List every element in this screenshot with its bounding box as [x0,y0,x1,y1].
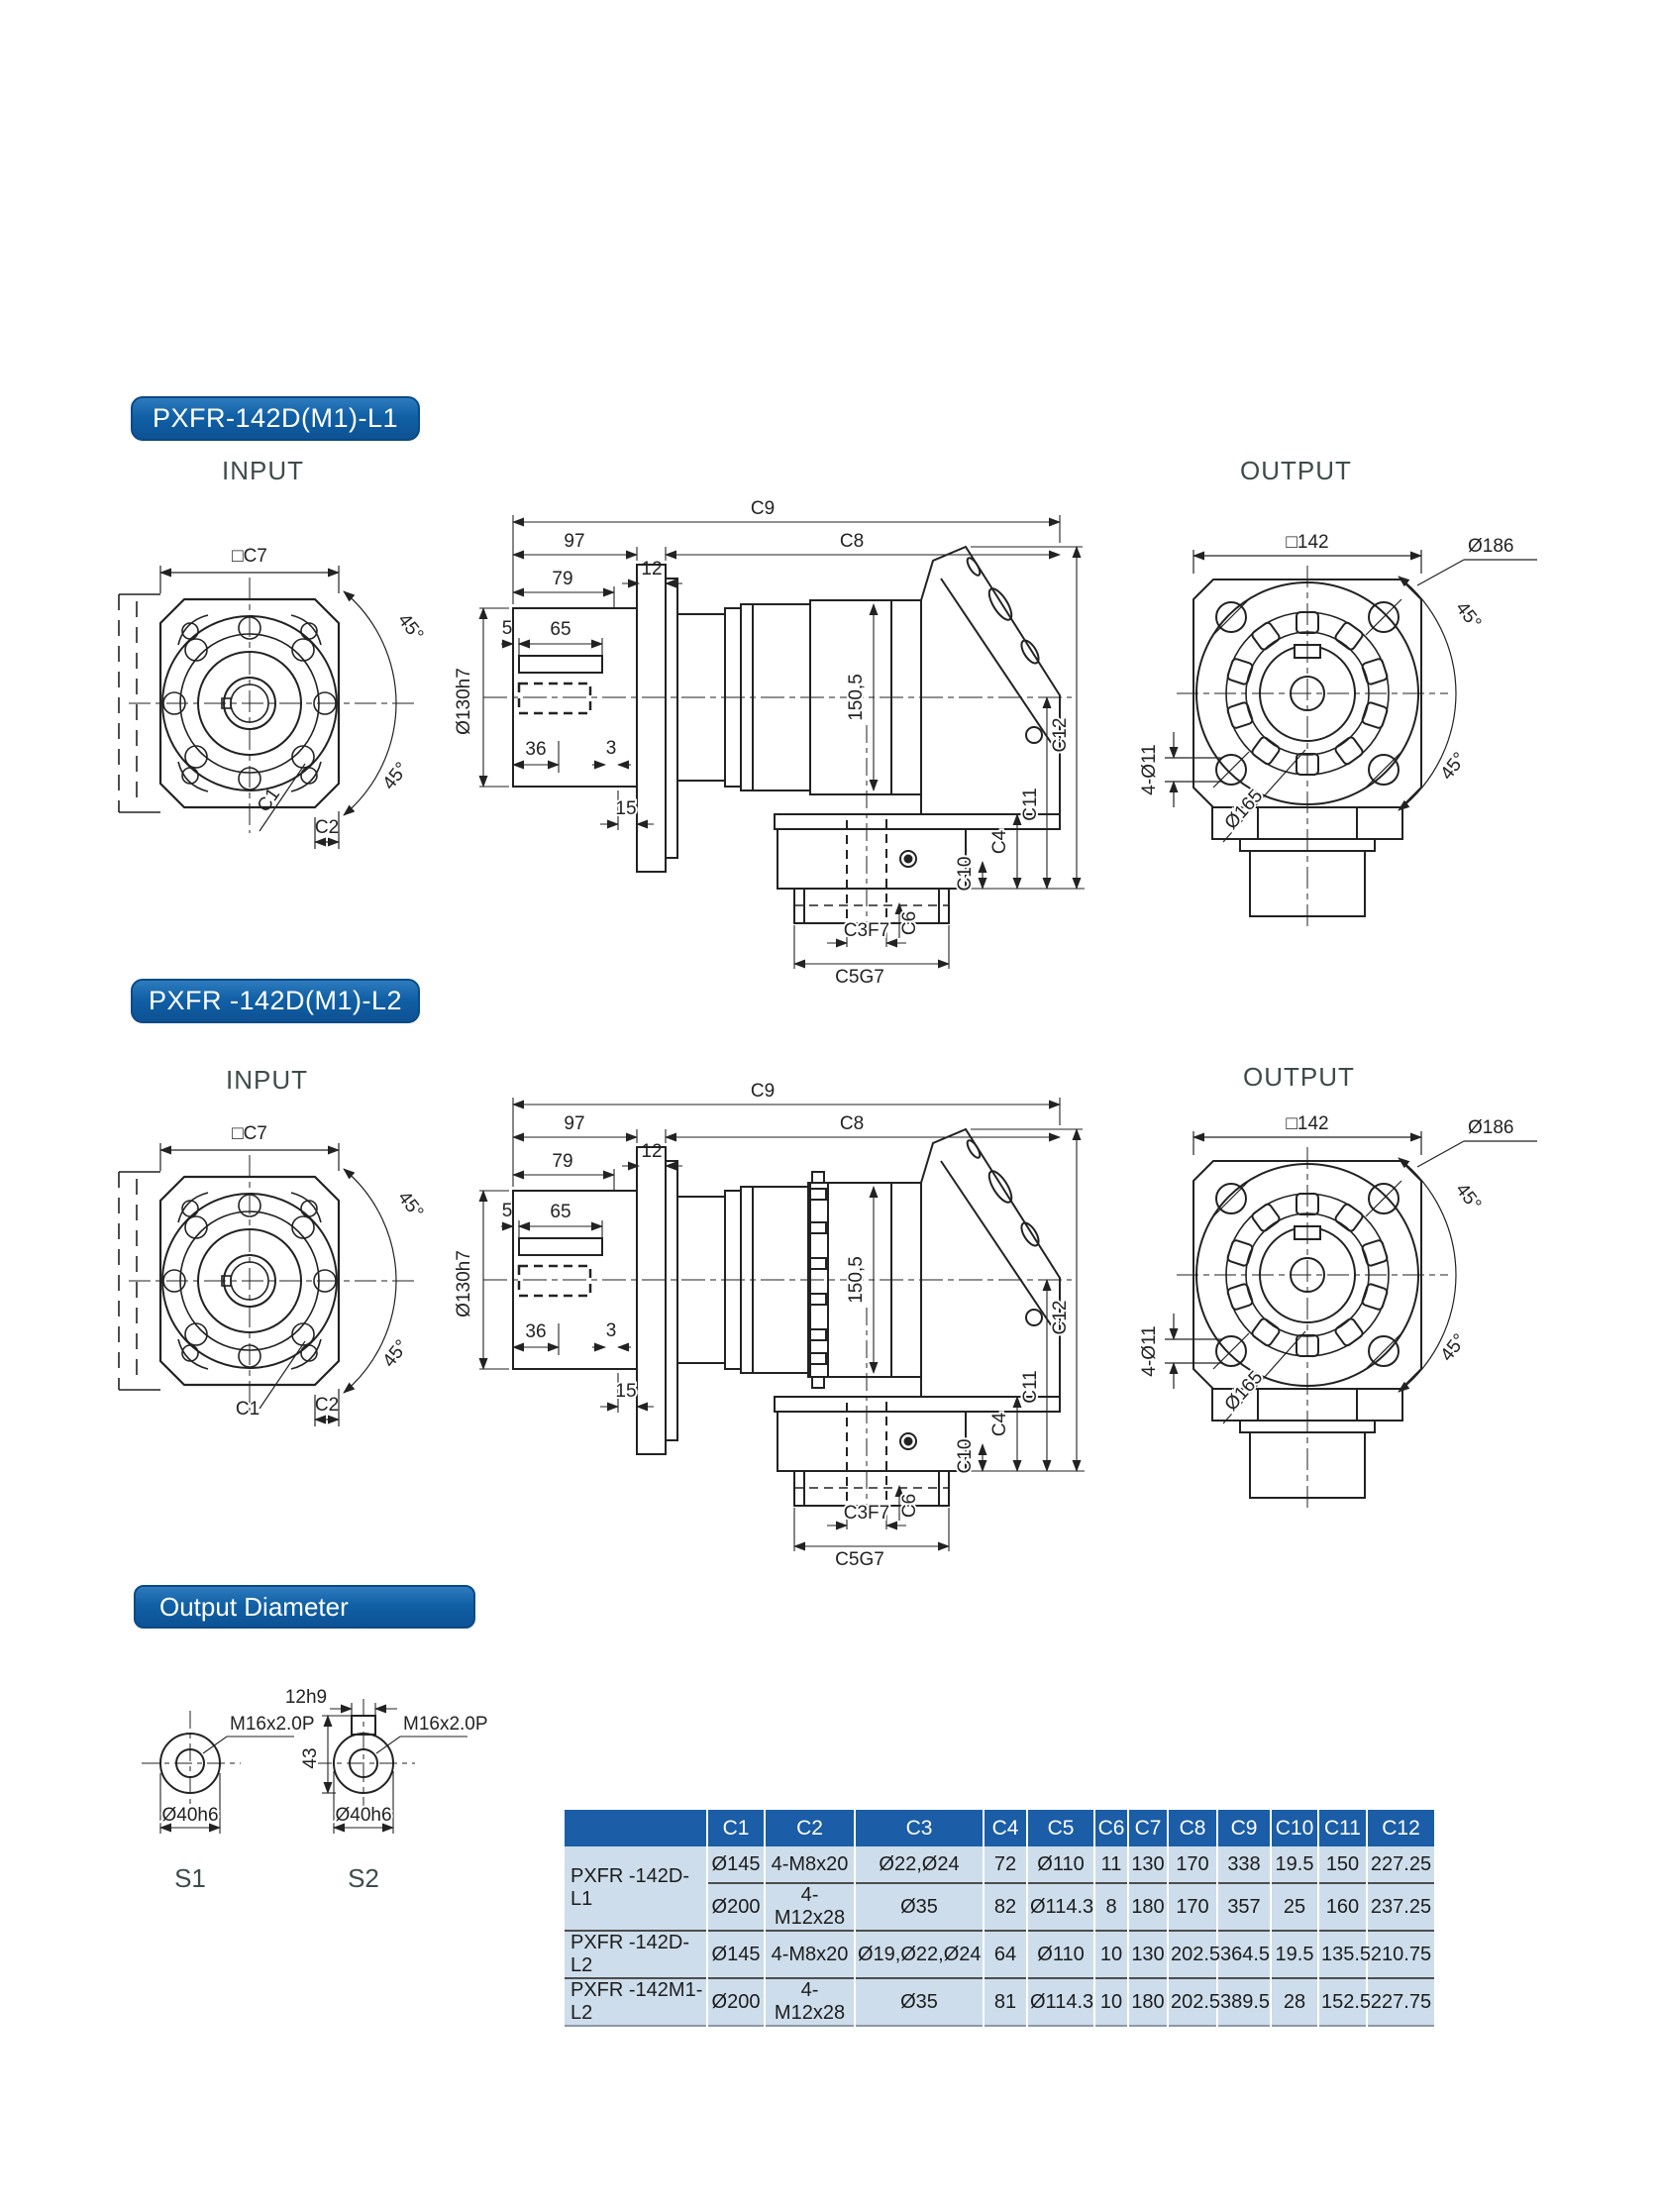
section-title-l2: PXFR -142D(M1)-L2 [131,979,420,1023]
spec-header-c3: C3 [855,1810,984,1846]
dim-c11: C11 [1020,1370,1041,1403]
dim-97: 97 [564,531,584,552]
spec-cell: Ø114.3 [1027,1883,1094,1931]
spec-cell: 82 [984,1883,1027,1931]
spec-cell: 227.25 [1367,1846,1434,1883]
dim-c10: C10 [955,857,976,892]
spec-cell: 28 [1271,1978,1318,2026]
spec-cell: 72 [984,1846,1027,1883]
spec-cell: Ø200 [707,1883,765,1931]
spec-header-row: C1 C2 C3 C4 C5 C6 C7 C8 C9 C10 C11 C12 [565,1810,1434,1846]
spec-cell: Ø35 [855,1978,984,2026]
input-label-l2: INPUT [226,1065,308,1096]
spec-cell: Ø145 [707,1846,765,1883]
spec-cell: 180 [1128,1978,1168,2026]
spec-header-c10: C10 [1271,1810,1318,1846]
shaft-label-s2: S2 [348,1863,379,1893]
spec-header-model [565,1810,707,1846]
spec-model-l1: PXFR -142D-L1 [565,1846,707,1931]
dim-65: 65 [550,619,570,640]
spec-cell: 338 [1217,1846,1271,1883]
spec-table: C1 C2 C3 C4 C5 C6 C7 C8 C9 C10 C11 C12 P… [565,1810,1434,2027]
spec-row-l2: PXFR -142D-L2 Ø145 4-M8x20 Ø19,Ø22,Ø24 6… [565,1931,1434,1978]
spec-model-l2: PXFR -142D-L2 [565,1931,707,1978]
spec-row-m1-l2: PXFR -142M1-L2 Ø200 4-M12x28 Ø35 81 Ø114… [565,1978,1434,2026]
dim-square: □142 [1286,1113,1328,1134]
spec-header-c11: C11 [1318,1810,1367,1846]
dim-angle-top: 45° [393,1188,427,1223]
spec-cell: Ø200 [707,1978,765,2026]
dim-c3: C3F7 [844,920,889,941]
side-view-hidden-lines [483,1266,1072,1518]
spec-cell: 11 [1094,1846,1128,1883]
dim-angle-bottom: 45° [379,759,413,794]
spec-cell: 25 [1271,1883,1318,1931]
dim-65: 65 [550,1202,570,1222]
dim-36: 36 [525,1321,546,1342]
spec-cell: 237.25 [1367,1883,1434,1931]
dim-3: 3 [606,738,617,759]
dim-3: 3 [606,1320,617,1341]
output-flange-dims [1165,550,1537,842]
dim-c11: C11 [1020,788,1041,820]
spec-cell: 64 [984,1931,1027,1978]
spec-cell: 227.75 [1367,1978,1434,2026]
dim-angle-top: 45° [1451,598,1485,634]
spec-header-c8: C8 [1168,1810,1217,1846]
spec-header-c6: C6 [1094,1810,1128,1846]
spec-header-c9: C9 [1217,1810,1271,1846]
output-diameter-title: Output Diameter [159,1592,349,1623]
dim-12: 12 [641,1141,662,1162]
spec-model-m1-l2: PXFR -142M1-L2 [565,1978,707,2026]
spec-cell: 4-M12x28 [765,1883,855,1931]
spec-cell: 10 [1094,1978,1128,2026]
dim-5: 5 [502,618,513,639]
datasheet-page: PXFR-142D(M1)-L1 INPUT OUTPUT [0,0,1659,2212]
dim-shaft-dia-s1: Ø40h6 [161,1805,218,1826]
spec-cell: 4-M8x20 [765,1931,855,1978]
spec-header-c4: C4 [984,1810,1027,1846]
spec-cell: 357 [1217,1883,1271,1931]
output-flange-dims [1165,1131,1537,1423]
dim-bolt-holes: 4-Ø11 [1139,1325,1160,1376]
spec-cell: 8 [1094,1883,1128,1931]
dim-angle-top: 45° [393,610,427,646]
spec-cell: 160 [1318,1883,1367,1931]
dim-c2: C2 [315,817,339,838]
dim-key-width-s2: 12h9 [285,1687,327,1708]
section-title-l1-text: PXFR-142D(M1)-L1 [153,403,398,434]
side-view-drawing-l1: C9 97 C8 79 12 5 65 Ø130h7 150,5 36 3 15… [426,487,1119,1052]
spec-cell: Ø110 [1027,1931,1094,1978]
spec-header-c1: C1 [707,1810,765,1846]
side-view-drawing-l2: C9 97 C8 79 12 5 65 Ø130h7 150,5 36 3 15… [426,1070,1119,1634]
dim-79: 79 [552,569,572,589]
spec-cell: 364.5 [1217,1931,1271,1978]
side-view-hidden-lines [483,684,1072,935]
dim-c9: C9 [751,498,775,519]
dim-c2: C2 [315,1395,339,1416]
dim-c8: C8 [840,1113,864,1134]
dim-150: 150,5 [846,1256,867,1304]
dim-c7: □C7 [232,546,267,567]
output-label-l2: OUTPUT [1243,1062,1355,1093]
output-view-drawing-l2: □142 Ø186 45° 45° 4-Ø11 Ø165 [1129,1102,1555,1527]
spec-cell: Ø110 [1027,1846,1094,1883]
dim-c4: C4 [989,829,1010,854]
dim-c5: C5G7 [835,1549,884,1570]
shaft-label-s1: S1 [174,1863,206,1893]
spec-header-c5: C5 [1027,1810,1094,1846]
dim-36: 36 [525,739,546,760]
dim-c6: C6 [899,911,920,935]
side-view-linework [513,547,1060,923]
input-label-l1: INPUT [222,456,304,486]
dim-c12: C12 [1050,1301,1071,1335]
input-flange-linework [119,594,339,812]
spec-header-c2: C2 [765,1810,855,1846]
spec-cell: 130 [1128,1846,1168,1883]
dim-shaft-dia-s2: Ø40h6 [335,1805,391,1826]
spec-cell: 4-M12x28 [765,1978,855,2026]
spec-cell: Ø19,Ø22,Ø24 [855,1931,984,1978]
dim-c6: C6 [899,1494,920,1518]
dim-5: 5 [502,1201,513,1221]
spec-cell: 210.75 [1367,1931,1434,1978]
output-diameter-drawing: M16x2.0P Ø40h6 S1 M16x2.0P 12h9 43 Ø40h6… [104,1677,574,1910]
spec-cell: 10 [1094,1931,1128,1978]
spec-cell: 202.5 [1168,1978,1217,2026]
dim-c1: C1 [236,1399,259,1420]
spec-cell: 19.5 [1271,1846,1318,1883]
dim-15: 15 [615,798,636,819]
dim-key-depth-s2: 43 [300,1747,321,1768]
spec-cell: Ø35 [855,1883,984,1931]
section-title-l1: PXFR-142D(M1)-L1 [131,396,420,441]
spec-cell: 180 [1128,1883,1168,1931]
dim-c8: C8 [840,531,864,552]
input-flange-linework [119,1172,339,1390]
dim-12: 12 [641,559,662,579]
output-diameter-title-bar: Output Diameter [134,1585,475,1629]
dim-c4: C4 [989,1412,1010,1436]
spec-cell: 130 [1128,1931,1168,1978]
spec-cell: 135.5 [1318,1931,1367,1978]
spec-cell: 170 [1168,1846,1217,1883]
dim-150: 150,5 [846,674,867,721]
spec-cell: 202.5 [1168,1931,1217,1978]
dim-c3: C3F7 [844,1503,889,1524]
dim-angle-bottom: 45° [1437,1330,1471,1366]
spec-cell: 150 [1318,1846,1367,1883]
dim-15: 15 [615,1381,636,1402]
spec-cell: 152.5 [1318,1978,1367,2026]
dim-c7: □C7 [232,1123,267,1144]
dim-c9: C9 [751,1081,775,1102]
spec-cell: Ø114.3 [1027,1978,1094,2026]
side-view-linework [513,1129,1060,1506]
dim-c12: C12 [1050,718,1071,753]
input-view-drawing-l2: □C7 45° 45° C1 C2 [99,1117,456,1444]
dim-bolt-holes: 4-Ø11 [1139,744,1160,794]
spec-cell: Ø22,Ø24 [855,1846,984,1883]
input-view-drawing-l1: □C7 45° 45° C1 C2 [99,540,456,867]
dim-79: 79 [552,1151,572,1172]
spec-header-c7: C7 [1128,1810,1168,1846]
dim-97: 97 [564,1113,584,1134]
dim-flange-dia: Ø186 [1468,536,1513,557]
dim-thread-s2: M16x2.0P [403,1714,488,1735]
dim-bore: Ø130h7 [454,668,474,735]
section-title-l2-text: PXFR -142D(M1)-L2 [149,986,402,1016]
spec-cell: 170 [1168,1883,1217,1931]
dim-bore: Ø130h7 [454,1250,474,1317]
output-view-drawing-l1: □142 Ø186 45° 45° 4-Ø11 Ø165 [1129,520,1555,946]
spec-cell: 389.5 [1217,1978,1271,2026]
dim-square: □142 [1286,532,1328,553]
spec-cell: 4-M8x20 [765,1846,855,1883]
dim-c5: C5G7 [835,967,884,988]
spec-header-c12: C12 [1367,1810,1434,1846]
dim-angle-bottom: 45° [379,1336,413,1372]
dim-flange-dia: Ø186 [1468,1117,1513,1138]
spec-cell: Ø145 [707,1931,765,1978]
dim-angle-top: 45° [1451,1180,1485,1215]
spec-row-l1-a: PXFR -142D-L1 Ø145 4-M8x20 Ø22,Ø24 72 Ø1… [565,1846,1434,1883]
spec-cell: 19.5 [1271,1931,1318,1978]
spec-cell: 81 [984,1978,1027,2026]
dim-c10: C10 [955,1439,976,1474]
dim-angle-bottom: 45° [1437,749,1471,785]
dim-thread-s1: M16x2.0P [230,1714,315,1735]
output-label-l1: OUTPUT [1240,456,1352,486]
